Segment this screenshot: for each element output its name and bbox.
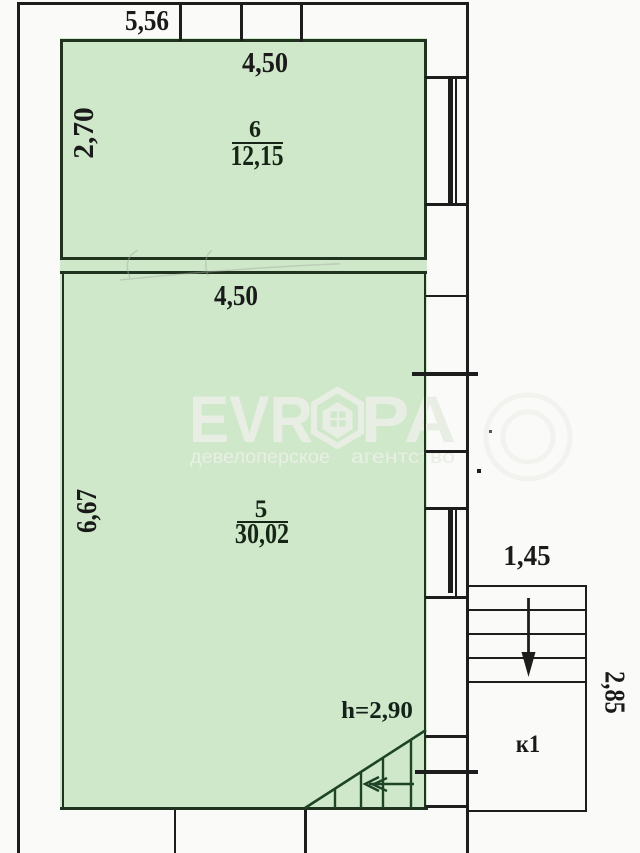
svg-text:PA: PA [361,382,456,456]
svg-text:EVR: EVR [189,382,313,456]
svg-text:девелоперское: девелоперское [190,447,330,468]
